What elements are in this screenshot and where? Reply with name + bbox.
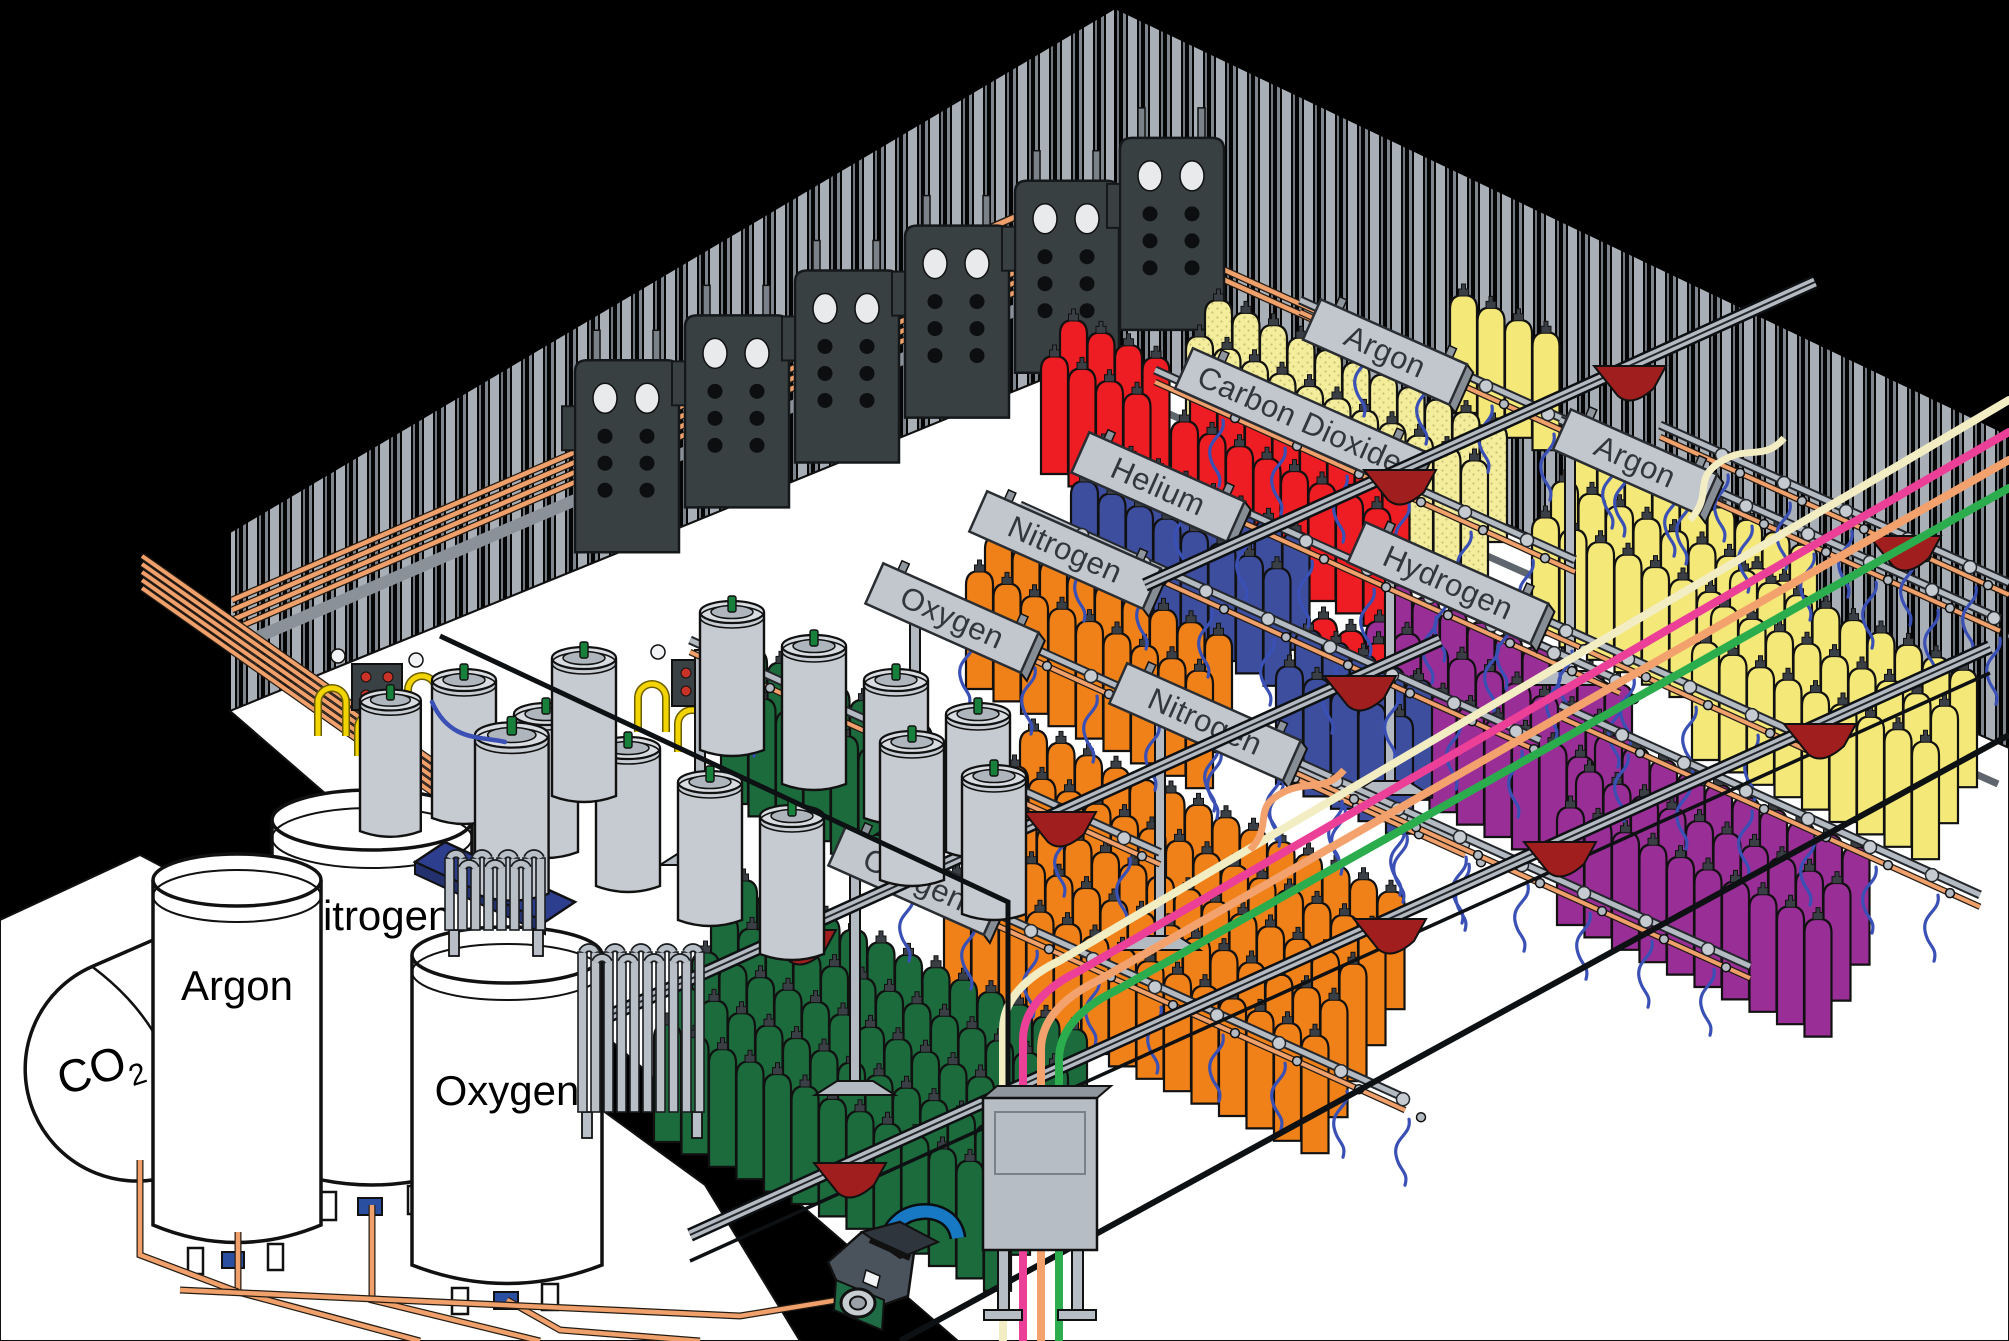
knob	[651, 645, 665, 659]
gas-cylinder	[1041, 356, 1068, 474]
panel-tab	[892, 272, 905, 316]
panel-post	[1093, 151, 1100, 181]
rail-fitting	[1778, 477, 1791, 490]
panel-port	[860, 366, 875, 381]
tank-argon: Argon	[153, 854, 321, 1274]
dewar-body	[962, 776, 1026, 920]
panel-body	[685, 315, 789, 507]
hose-valve	[1760, 520, 1769, 529]
gas-cylinder	[1805, 919, 1832, 1037]
tank-top	[153, 854, 321, 906]
panel-tab	[1107, 184, 1120, 228]
knob	[409, 653, 423, 667]
hose-valve	[1282, 633, 1291, 642]
rail-fitting	[1864, 841, 1877, 854]
rail-fitting	[1678, 757, 1691, 770]
vaporizer-leg	[449, 930, 459, 956]
tank-leg	[188, 1248, 203, 1274]
panel-port	[750, 384, 765, 399]
hose-valve	[1722, 963, 1731, 972]
dewar-body	[360, 700, 421, 837]
hose-valve	[1946, 889, 1955, 898]
rail-fitting	[1397, 1093, 1410, 1106]
panel-tab	[782, 316, 795, 360]
liquid-dewar	[760, 800, 824, 960]
cabinet-leg	[1072, 1250, 1083, 1314]
gas-cylinder	[737, 1061, 764, 1179]
hose-valve	[766, 684, 775, 693]
vaporizer-fin	[656, 952, 665, 1112]
hose-valve	[1043, 662, 1052, 671]
hose-valve	[1984, 581, 1993, 590]
rail-fitting	[1988, 612, 2001, 625]
rail-fitting	[1480, 380, 1493, 393]
panel-gauge	[593, 383, 617, 413]
hose-valve	[1406, 689, 1415, 698]
hose-valve	[1946, 604, 1955, 613]
panel-port	[598, 429, 613, 444]
gas-cylinder	[1912, 741, 1939, 859]
hose-valve	[1231, 1029, 1240, 1038]
manifold-panel	[672, 285, 789, 507]
manifold-panel	[1107, 108, 1224, 330]
dewar-valve	[387, 685, 395, 700]
dewar-valve	[810, 630, 818, 646]
panel-gauge	[923, 249, 947, 279]
vaporizer-fin	[630, 952, 639, 1112]
panel-gauge	[1138, 161, 1162, 191]
hose-valve	[1474, 851, 1483, 860]
vaporizer-fin	[604, 952, 613, 1112]
indicator-light	[681, 686, 691, 696]
gas-cylinder	[709, 1049, 736, 1167]
hose-valve	[1500, 400, 1509, 409]
panel-port	[708, 384, 723, 399]
liquid-dewar	[678, 766, 742, 926]
panel-port	[970, 348, 985, 363]
hose-valve	[1220, 605, 1229, 614]
rail-fitting	[1118, 832, 1131, 845]
rail-fitting	[1025, 925, 1038, 938]
panel-port	[928, 294, 943, 309]
hose-valve	[1822, 548, 1831, 557]
panel-tab	[562, 406, 575, 450]
panel-gauge	[1180, 161, 1204, 191]
panel-post	[873, 240, 880, 270]
panel-post	[1033, 151, 1040, 181]
rail-fitting	[1448, 697, 1461, 710]
liquid-dewar	[552, 642, 616, 802]
dewar-body	[700, 612, 764, 756]
tank-label: Argon	[181, 962, 293, 1009]
manifold-panel	[892, 196, 1009, 418]
panel-port	[1038, 303, 1053, 318]
vaporizer-fin	[536, 858, 545, 930]
panel-port	[1185, 206, 1200, 221]
gas-cylinder	[1695, 869, 1722, 987]
dewar-valve	[908, 726, 916, 742]
rail-fitting	[1740, 500, 1753, 513]
panel-tab	[672, 361, 685, 405]
rail-fitting	[1200, 585, 1213, 598]
vaporizer-fin	[643, 952, 652, 1112]
hose-valve	[1444, 611, 1453, 620]
hose-valve	[1045, 945, 1054, 954]
panel-port	[640, 456, 655, 471]
panel-port	[1080, 249, 1095, 264]
rail-fitting	[1149, 981, 1162, 994]
pump-port	[850, 1297, 866, 1310]
rail-fitting	[1521, 534, 1534, 547]
rail-fitting	[1262, 613, 1275, 626]
dewar-valve	[624, 732, 632, 748]
stand-post	[850, 855, 860, 1085]
gas-cylinder	[1777, 906, 1804, 1024]
rail-fitting	[1560, 625, 1573, 638]
panel-post	[923, 196, 930, 226]
panel-body	[795, 270, 899, 462]
panel-post	[703, 285, 710, 315]
vaporizer-fin	[617, 952, 626, 1112]
hose-valve	[1884, 576, 1893, 585]
panel-gauge	[855, 293, 879, 323]
panel-port	[1143, 233, 1158, 248]
knob	[331, 649, 345, 663]
vaporizer-fin	[445, 858, 454, 930]
panel-post	[1198, 108, 1205, 138]
rail-fitting	[1459, 506, 1472, 519]
panel-port	[1080, 303, 1095, 318]
panel-port	[640, 429, 655, 444]
hose-valve	[1382, 583, 1391, 592]
vaporizer-fin	[695, 952, 704, 1112]
tank-oxygen: Oxygen	[412, 927, 602, 1314]
panel-tab	[1002, 227, 1015, 271]
rail-fitting	[1548, 647, 1561, 660]
dewar-body	[678, 782, 742, 926]
panel-port	[860, 393, 875, 408]
panel-gauge	[813, 293, 837, 323]
cabinet-foot	[1058, 1310, 1096, 1320]
hose-valve	[1704, 701, 1713, 710]
panel-port	[1185, 233, 1200, 248]
indicator-light	[681, 668, 691, 678]
panel-post	[763, 285, 770, 315]
rail-fitting	[1640, 915, 1653, 928]
panel-port	[1038, 249, 1053, 264]
panel-port	[640, 483, 655, 498]
panel-gauge	[635, 383, 659, 413]
gas-cylinder	[1722, 881, 1749, 999]
hose-valve	[1536, 879, 1545, 888]
dewar-valve	[507, 717, 516, 735]
manifold-panel	[782, 240, 899, 462]
rail-fitting	[1454, 831, 1467, 844]
dewar-body	[880, 742, 944, 886]
panel-port	[1080, 276, 1095, 291]
hose-valve	[1417, 498, 1426, 507]
panel-body	[575, 360, 679, 552]
panel-port	[750, 411, 765, 426]
rail-fitting	[1702, 943, 1715, 956]
indicator-light	[383, 672, 393, 682]
rail-fitting	[1324, 641, 1337, 654]
rail-fitting	[1802, 813, 1815, 826]
gas-cylinder	[1612, 832, 1639, 950]
panel-port	[818, 339, 833, 354]
rail-fitting	[1926, 869, 1939, 882]
vaporizer-leg	[582, 1112, 592, 1138]
hose-valve	[1598, 907, 1607, 916]
rail-fitting	[1840, 505, 1853, 518]
gas-cylinder	[1533, 332, 1560, 450]
panel-port	[860, 339, 875, 354]
hose-valve	[1479, 526, 1488, 535]
panel-port	[598, 483, 613, 498]
rail-fitting	[1964, 561, 1977, 574]
hose-valve	[1541, 554, 1550, 563]
vaporizer-fin	[591, 952, 600, 1112]
liquid-dewar	[880, 726, 944, 886]
dewar-valve	[542, 698, 550, 714]
vaporizer-fin	[578, 952, 587, 1112]
hose-valve	[1860, 525, 1869, 534]
panel-gauge	[1033, 204, 1057, 234]
panel-port	[970, 294, 985, 309]
panel-port	[928, 348, 943, 363]
panel-post	[653, 330, 660, 360]
hose-valve	[1506, 639, 1515, 648]
rail-fitting	[1273, 1037, 1286, 1050]
panel-port	[708, 411, 723, 426]
indicator-light	[361, 672, 371, 682]
gas-cylinder	[957, 1160, 984, 1278]
hose-valve	[1736, 469, 1745, 478]
panel-gauge	[703, 338, 727, 368]
rail-fitting	[1746, 709, 1759, 722]
gas-cylinder	[819, 1098, 846, 1216]
hose-valve	[1568, 667, 1577, 676]
liquid-dewar	[700, 596, 764, 756]
gas-cylinder	[1750, 894, 1777, 1012]
tank-top	[412, 927, 602, 983]
panel-port	[598, 456, 613, 471]
cabinet-foot	[984, 1310, 1022, 1320]
panel-post	[593, 330, 600, 360]
scene-svg: Oxygen Nitrogen Helium Carbon Dioxide	[0, 0, 2009, 1341]
hose-valve	[1798, 497, 1807, 506]
tank-leg	[268, 1244, 283, 1270]
panel-port	[970, 321, 985, 336]
dewar-valve	[706, 766, 714, 782]
hose-valve	[1344, 661, 1353, 670]
vaporizer-leg	[533, 930, 543, 956]
liquid-dewar	[360, 685, 421, 837]
rail-fitting	[1085, 670, 1098, 683]
dewar-valve	[990, 760, 998, 776]
rail-fitting	[1300, 535, 1313, 548]
panel-port	[750, 438, 765, 453]
hose-valve	[1350, 795, 1359, 804]
cabinet-top	[983, 1086, 1111, 1098]
tank-label: Oxygen	[435, 1067, 580, 1114]
manifold-panel	[562, 330, 679, 552]
dewar-valve	[974, 698, 982, 714]
panel-gauge	[965, 249, 989, 279]
hose-valve	[1636, 749, 1645, 758]
panel-post	[983, 196, 990, 226]
hose-valve	[1760, 805, 1769, 814]
panel-port	[1143, 260, 1158, 275]
vaporizer-fin	[669, 952, 678, 1112]
gas-plant-illustration: Oxygen Nitrogen Helium Carbon Dioxide	[0, 0, 2009, 1341]
hose-valve	[1293, 1057, 1302, 1066]
rail-fitting	[1616, 729, 1629, 742]
panel-port	[708, 438, 723, 453]
rail-fitting	[1335, 1065, 1348, 1078]
panel-body	[1120, 138, 1224, 330]
dewar-valve	[892, 664, 900, 680]
vaporizer-fin	[682, 952, 691, 1112]
gas-cylinder	[764, 1074, 791, 1192]
hose-valve	[1766, 729, 1775, 738]
rail-fitting	[1684, 681, 1697, 694]
panel-port	[1185, 260, 1200, 275]
dewar-body	[760, 816, 824, 960]
panel-port	[818, 366, 833, 381]
liquid-dewar	[782, 630, 846, 790]
hose-valve	[1660, 935, 1669, 944]
dewar-valve	[460, 664, 468, 680]
cabinet-leg	[998, 1250, 1009, 1314]
panel-port	[928, 321, 943, 336]
panel-gauge	[1075, 204, 1099, 234]
panel-port	[1038, 276, 1053, 291]
panel-gauge	[745, 338, 769, 368]
vaporizer-leg	[692, 1112, 702, 1138]
rail-fitting	[1578, 887, 1591, 900]
hose-valve	[1138, 852, 1147, 861]
tank-body	[412, 955, 602, 1284]
dewar-valve	[580, 642, 588, 658]
panel-post	[1138, 108, 1145, 138]
panel-port	[818, 393, 833, 408]
dewar-valve	[728, 596, 736, 612]
hose-valve	[1417, 1113, 1426, 1122]
tank-body	[153, 880, 321, 1243]
rail-fitting	[1926, 584, 1939, 597]
dewar-body	[552, 658, 616, 802]
hose-valve	[1642, 673, 1651, 682]
panel-post	[813, 240, 820, 270]
dewar-body	[782, 646, 846, 790]
panel-body	[905, 226, 1009, 418]
hose-valve	[1320, 555, 1329, 564]
hose-valve	[1884, 861, 1893, 870]
panel-port	[1143, 206, 1158, 221]
rail-fitting	[1802, 528, 1815, 541]
